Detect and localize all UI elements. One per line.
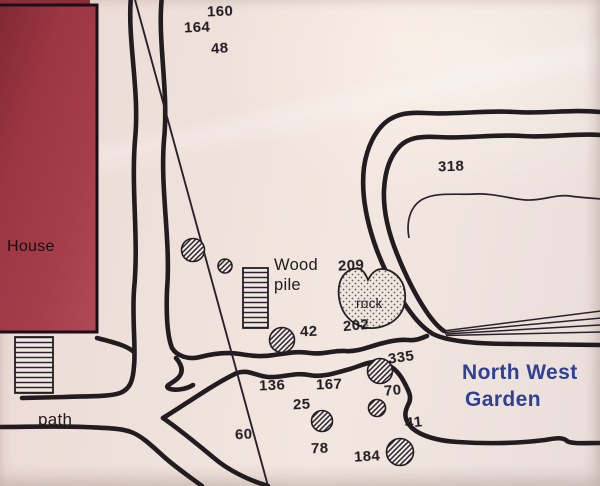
hatched-circle-marker [369, 400, 386, 417]
measurement-label: 318 [438, 158, 465, 176]
wood-pile-shape [243, 268, 268, 328]
wood-pile-label-line1: Wood [274, 255, 318, 275]
measurement-label: 60 [235, 426, 253, 444]
garden-map-photo: House path Wood pile rock North West Gar… [0, 0, 600, 486]
region-title-line1: North West [462, 359, 578, 386]
hatched-circle-marker [387, 439, 414, 466]
rock-label: rock [356, 296, 383, 311]
measurement-label: 78 [311, 440, 329, 458]
contour-line-318 [408, 194, 600, 238]
measurement-label: 25 [293, 396, 311, 414]
wood-pile-label-line2: pile [274, 275, 318, 295]
measurement-label: 209 [338, 256, 365, 274]
measurement-label: 42 [300, 323, 318, 341]
region-title: North West Garden [462, 359, 578, 413]
house-steps-shape [15, 337, 53, 393]
measurement-label: 184 [354, 447, 381, 465]
measurement-label: 48 [210, 39, 229, 57]
path-label: path [38, 410, 72, 430]
measurement-label: 41 [404, 413, 423, 431]
measurement-label: 202 [342, 316, 370, 335]
measurement-label: 136 [259, 377, 286, 395]
hatched-circle-marker [270, 328, 295, 353]
fence-lines [443, 311, 600, 336]
measurement-label: 70 [383, 381, 402, 399]
hatched-circle-marker [218, 259, 232, 273]
house-shape [0, 0, 97, 332]
region-title-line2: Garden [465, 386, 578, 413]
measurement-label: 164 [184, 19, 211, 37]
house-label: House [7, 238, 55, 256]
measurement-label: 160 [207, 3, 234, 21]
hatched-circle-marker [182, 239, 205, 262]
hatched-circle-marker [312, 411, 333, 432]
map-drawing [0, 0, 600, 486]
measurement-label: 167 [316, 376, 343, 394]
wood-pile-label: Wood pile [274, 255, 318, 295]
measurement-label: 335 [387, 347, 415, 367]
